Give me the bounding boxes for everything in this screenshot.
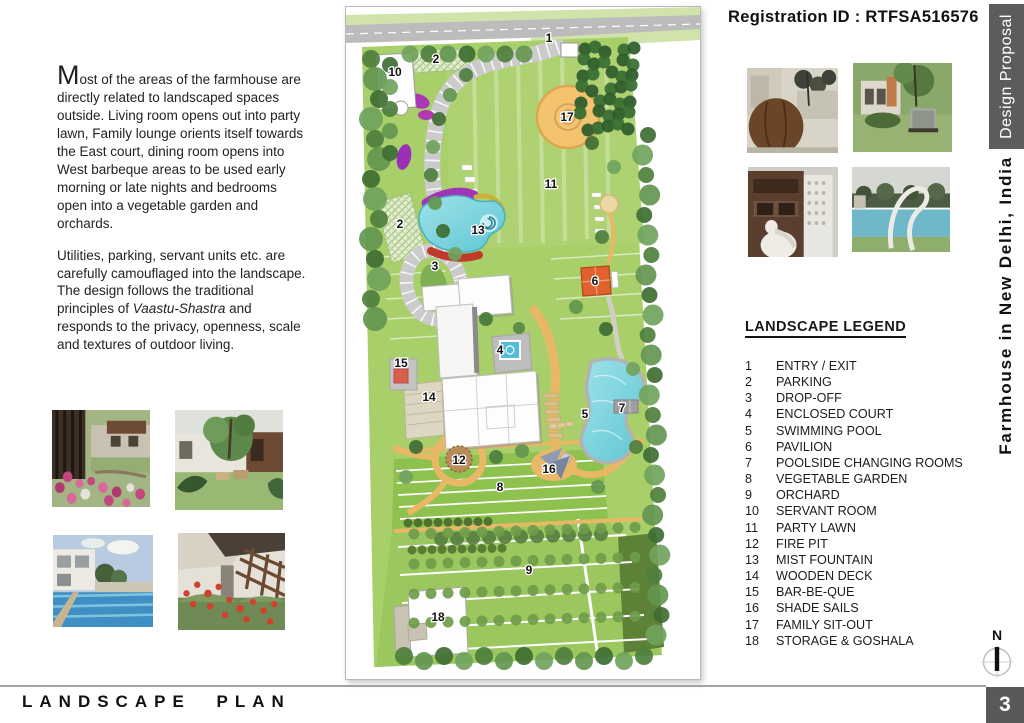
intro-paragraph-1: Most of the areas of the farmhouse are d… (57, 64, 309, 233)
photo-poppy-garden-pergola (178, 533, 285, 630)
legend-item: 4ENCLOSED COURT (745, 406, 995, 422)
photo-sphere-sculpture-court (747, 68, 838, 153)
plan-marker-5: 5 (582, 407, 589, 421)
legend-item: 10SERVANT ROOM (745, 503, 995, 519)
legend-item: 14WOODEN DECK (745, 568, 995, 584)
plan-marker-8: 8 (497, 480, 504, 494)
north-label: N (992, 627, 1002, 643)
landscape-legend: LANDSCAPE LEGEND 1ENTRY / EXIT2PARKING3D… (745, 318, 995, 649)
legend-item: 6PAVILION (745, 439, 995, 455)
legend-item: 17FAMILY SIT-OUT (745, 617, 995, 633)
plan-marker-15: 15 (394, 356, 408, 370)
legend-title: LANDSCAPE LEGEND (745, 319, 906, 338)
footer-divider (0, 685, 986, 687)
plan-marker-18: 18 (431, 610, 445, 624)
legend-item: 5SWIMMING POOL (745, 423, 995, 439)
plan-marker-6: 6 (592, 274, 599, 288)
plan-marker-13: 13 (471, 223, 485, 237)
legend-item: 2PARKING (745, 374, 995, 390)
plan-marker-14: 14 (422, 390, 436, 404)
page-title: LANDSCAPE PLAN (22, 692, 291, 712)
plan-marker-10: 10 (388, 65, 402, 79)
project-title-vertical: Farmhouse in New Delhi, India (991, 156, 1021, 508)
legend-item: 11PARTY LAWN (745, 520, 995, 536)
plan-marker-12: 12 (452, 453, 466, 467)
legend-item: 12FIRE PIT (745, 536, 995, 552)
page-number-box: 3 (986, 687, 1024, 723)
intro-text-block: Most of the areas of the farmhouse are d… (57, 64, 309, 368)
presentation-page: Registration ID : RTFSA516576 Design Pro… (0, 0, 1024, 723)
plan-marker-7: 7 (619, 401, 626, 415)
legend-list: 1ENTRY / EXIT2PARKING3DROP-OFF4ENCLOSED … (745, 358, 995, 649)
legend-item: 13MIST FOUNTAIN (745, 552, 995, 568)
plan-marker-4: 4 (497, 343, 504, 357)
changing-rooms (614, 400, 638, 413)
photo-swimming-pool-villa (53, 535, 153, 627)
vaastu-term: Vaastu-Shastra (133, 301, 226, 316)
plan-marker-2: 2 (397, 217, 404, 231)
legend-item: 15BAR-BE-QUE (745, 584, 995, 600)
plan-marker-9: 9 (526, 563, 533, 577)
landscape-plan-drawing: 1210171121336415147512168918 (346, 7, 700, 679)
photo-wood-screen-flower-bed (52, 410, 150, 507)
plan-marker-11: 11 (545, 177, 558, 191)
plan-marker-16: 16 (542, 462, 556, 476)
landscape-plan-panel: 1210171121336415147512168918 (345, 6, 701, 680)
legend-item: 16SHADE SAILS (745, 600, 995, 616)
legend-item: 8VEGETABLE GARDEN (745, 471, 995, 487)
entry-gate (561, 43, 578, 57)
north-arrow: N (975, 624, 1019, 684)
photo-jali-facade-sculpture (748, 167, 838, 257)
plan-marker-17: 17 (560, 110, 574, 124)
legend-item: 3DROP-OFF (745, 390, 995, 406)
legend-item: 18STORAGE & GOSHALA (745, 633, 995, 649)
legend-item: 7POOLSIDE CHANGING ROOMS (745, 455, 995, 471)
registration-id: Registration ID : RTFSA516576 (728, 8, 988, 27)
project-title-label: Farmhouse in New Delhi, India (996, 156, 1016, 455)
intro-paragraph-2: Utilities, parking, servant units etc. a… (57, 247, 309, 355)
page-number: 3 (999, 693, 1011, 717)
plan-marker-3: 3 (432, 259, 439, 273)
design-proposal-label: Design Proposal (998, 14, 1016, 139)
legend-item: 9ORCHARD (745, 487, 995, 503)
design-proposal-tab: Design Proposal (989, 4, 1024, 149)
plan-marker-2: 2 (433, 52, 440, 66)
legend-item: 1ENTRY / EXIT (745, 358, 995, 374)
photo-lawn-tree-sitout (175, 410, 283, 510)
photo-pool-arc-sculpture (852, 167, 950, 252)
photo-garden-lounge-chair (853, 63, 952, 152)
lawn-circle-feature (600, 195, 618, 213)
plan-marker-1: 1 (546, 31, 553, 45)
